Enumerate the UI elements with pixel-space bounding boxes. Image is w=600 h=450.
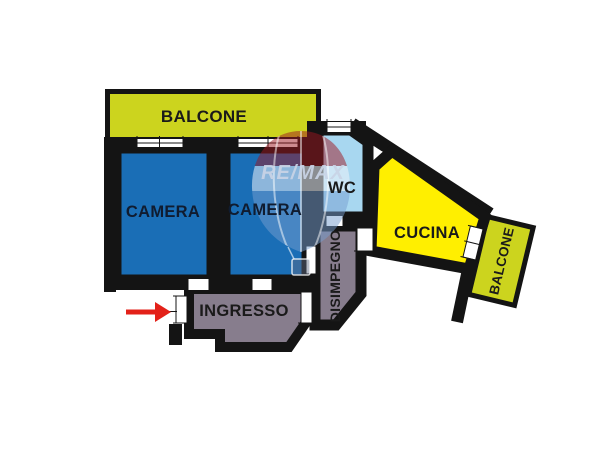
label-disimpegno: DISIMPEGNO: [327, 230, 343, 322]
balloon-basket: [292, 259, 310, 275]
door-entrance: [173, 296, 190, 323]
door-ingresso-disimpegno: [298, 292, 315, 323]
label-ingresso: INGRESSO: [199, 302, 289, 320]
label-camera-2: CAMERA: [228, 201, 302, 219]
entrance-arrow-shaft: [126, 310, 156, 315]
label-balcone-top: BALCONE: [161, 107, 247, 126]
wall-entry-stub: [169, 324, 182, 345]
door-camera2-ingresso: [252, 276, 272, 293]
label-camera-1: CAMERA: [126, 203, 200, 221]
window-wc: [327, 119, 351, 135]
label-wc: WC: [328, 179, 356, 197]
door-cucina-disimpegno: [354, 228, 376, 251]
label-cucina: CUCINA: [394, 224, 460, 242]
floor-plan: RE/MAX BALCONE CAMERA CAMERA WC DISIMPEG…: [0, 0, 600, 450]
window-balcone-camera1: [137, 136, 183, 150]
door-camera1-ingresso: [188, 276, 209, 293]
